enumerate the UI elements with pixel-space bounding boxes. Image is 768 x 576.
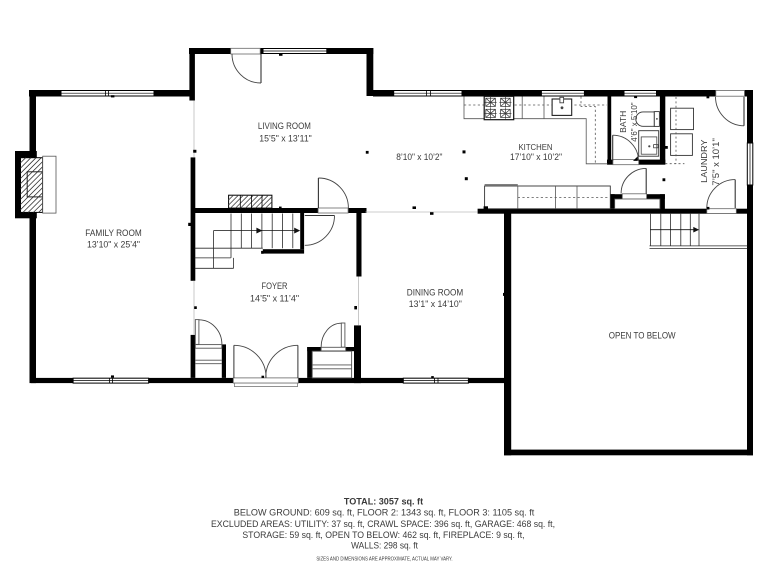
svg-text:FOYER: FOYER [262, 281, 288, 291]
svg-text:LIVING ROOM: LIVING ROOM [258, 121, 311, 131]
svg-text:BATH: BATH [619, 111, 628, 133]
svg-text:8’10" x 10’2": 8’10" x 10’2" [396, 152, 442, 162]
svg-text:14’5" x 11’4": 14’5" x 11’4" [250, 293, 299, 303]
svg-text:TOTAL: 3057 sq. ft: TOTAL: 3057 sq. ft [344, 495, 423, 506]
svg-text:DINING ROOM: DINING ROOM [407, 288, 463, 298]
svg-text:EXCLUDED AREAS: UTILITY: 37 sq: EXCLUDED AREAS: UTILITY: 37 sq. ft, CRAW… [211, 518, 555, 529]
svg-text:7’5" x 10’1": 7’5" x 10’1" [711, 138, 721, 185]
svg-text:LAUNDRY: LAUNDRY [699, 139, 709, 183]
svg-text:WALLS: 298 sq. ft: WALLS: 298 sq. ft [351, 539, 418, 550]
svg-text:SIZES AND DIMENSIONS ARE APPRO: SIZES AND DIMENSIONS ARE APPROXIMATE, AC… [316, 556, 452, 562]
svg-text:4’6" x 5’10": 4’6" x 5’10" [630, 102, 639, 141]
svg-text:13’1" x 14’10": 13’1" x 14’10" [409, 299, 462, 309]
svg-text:17’10" x 10’2": 17’10" x 10’2" [510, 152, 562, 162]
svg-text:13’10" x 25’4": 13’10" x 25’4" [87, 240, 140, 250]
svg-text:BELOW GROUND: 609 sq. ft, FLOO: BELOW GROUND: 609 sq. ft, FLOOR 2: 1343 … [234, 507, 535, 518]
svg-text:STORAGE: 59 sq. ft, OPEN TO BE: STORAGE: 59 sq. ft, OPEN TO BELOW: 462 s… [242, 529, 524, 540]
svg-text:KITCHEN: KITCHEN [519, 142, 553, 152]
svg-text:OPEN TO BELOW: OPEN TO BELOW [609, 329, 676, 340]
svg-text:FAMILY ROOM: FAMILY ROOM [85, 228, 142, 238]
svg-text:15’5" x 13’11": 15’5" x 13’11" [259, 134, 312, 144]
